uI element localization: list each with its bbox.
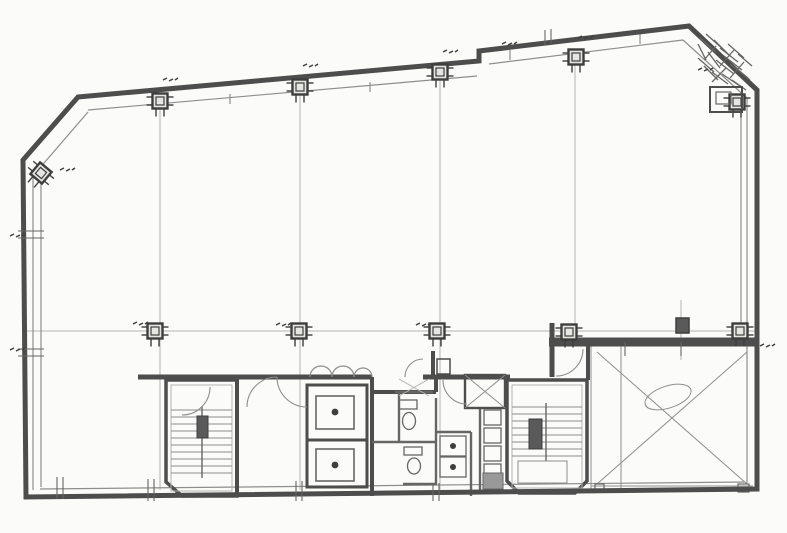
door-swing-arcs <box>182 349 583 415</box>
column-marker <box>286 324 313 347</box>
stair-b <box>507 380 587 493</box>
wall-inner-face-lines <box>33 34 748 490</box>
column-marker <box>21 159 56 194</box>
restrooms <box>372 359 505 496</box>
structural-grid <box>26 64 755 490</box>
stair-a <box>166 380 237 496</box>
elevator-shafts <box>307 385 367 487</box>
column-marker <box>563 50 590 73</box>
column-marker <box>424 324 451 347</box>
column-marker <box>142 324 169 347</box>
scanned-floorplan-page <box>0 0 787 533</box>
floor-plan-drawing <box>0 0 787 533</box>
outer-walls <box>23 26 757 497</box>
